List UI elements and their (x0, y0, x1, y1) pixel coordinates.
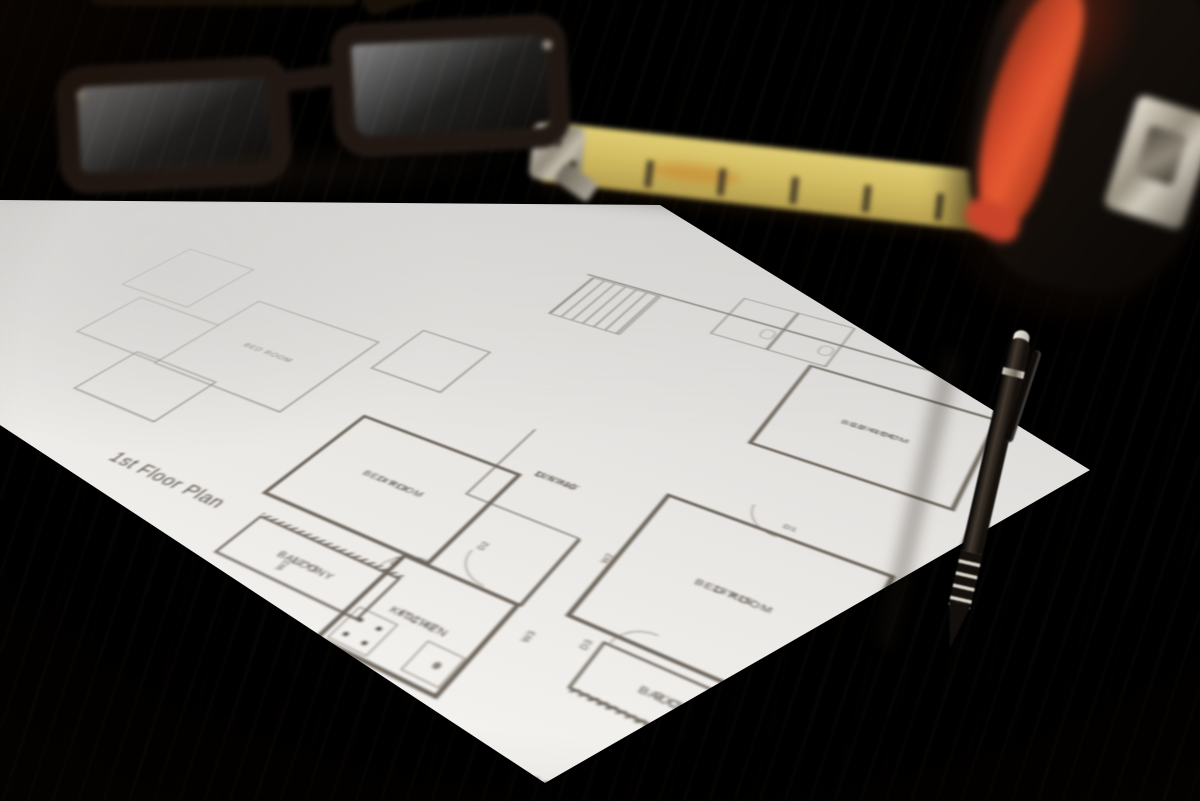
pen-grip-rings (949, 550, 982, 606)
photo-floor-plan-on-desk: BED ROOM DINING 11'6"X10' BED ROOM 14'X1… (0, 0, 1200, 801)
glasses-temple-left (89, 0, 359, 6)
room-size: 6'11"X7' (395, 607, 444, 635)
plan-title: 1st Floor Plan (103, 449, 231, 512)
wall-connector (518, 539, 581, 607)
pen-tip-cone (939, 601, 971, 651)
eyeglasses (19, 0, 611, 237)
room-size: 14'X13' (374, 474, 413, 493)
ballpoint-pen (872, 322, 1022, 682)
bath-fixture-icon (816, 345, 836, 357)
glasses-lens-right (329, 13, 572, 159)
toilet-fixture-icon (758, 328, 778, 340)
room-toilet-a (371, 330, 492, 393)
room-size: 11'6"X10' (532, 470, 581, 492)
door-tag: D2 (475, 540, 492, 552)
room-label: BED ROOM (241, 342, 295, 364)
tape-measure-clip-screw (1134, 125, 1188, 187)
door-tag: D1 (781, 523, 798, 534)
glasses-lens-left (55, 55, 293, 195)
door-tag: D3 (577, 638, 596, 652)
window-tag: W3 (519, 629, 539, 645)
staircase (548, 277, 661, 335)
tape-measure-belt-clip (1103, 94, 1200, 232)
